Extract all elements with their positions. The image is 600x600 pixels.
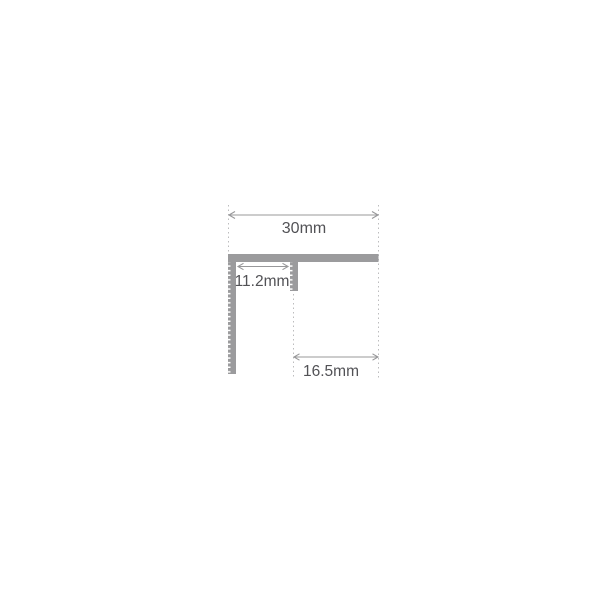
profile-left-leg-serration bbox=[228, 254, 231, 374]
profile-center-stub bbox=[293, 262, 299, 291]
profile-center-stub-serration bbox=[290, 262, 293, 291]
dimension-label-overall-width: 30mm bbox=[282, 220, 326, 237]
profile-left-leg bbox=[231, 254, 237, 374]
dimension-label-base-width: 16.5mm bbox=[303, 363, 359, 380]
profile-top-flange bbox=[228, 254, 379, 262]
profile-dimension-diagram: 30mm 11.2mm 16.5mm bbox=[0, 0, 600, 600]
diagram-canvas: 30mm 11.2mm 16.5mm bbox=[0, 0, 600, 600]
diagram-background bbox=[0, 0, 600, 600]
dimension-label-inner-width: 11.2mm bbox=[235, 273, 290, 290]
